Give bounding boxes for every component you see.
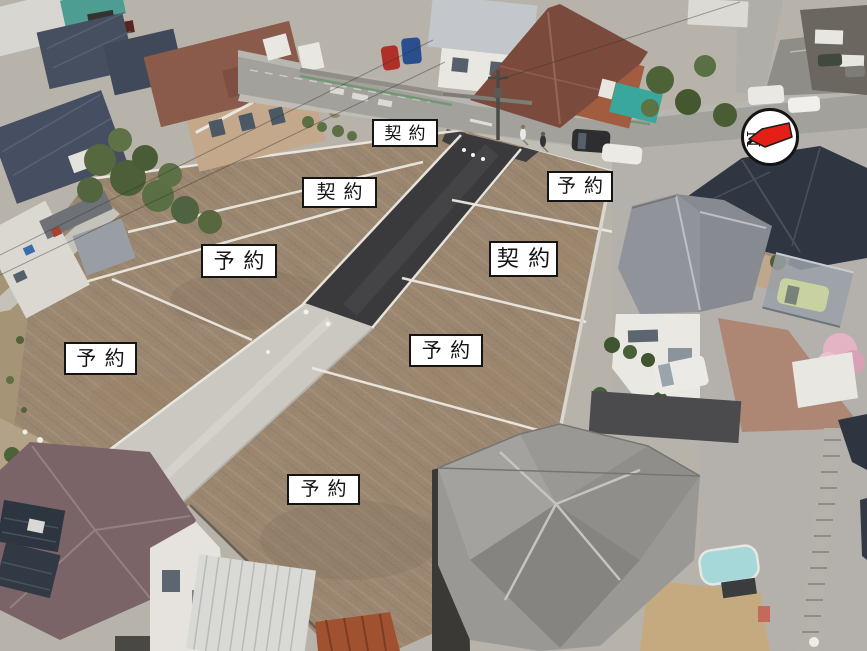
stepping-stone (809, 637, 819, 647)
red-bin (758, 606, 770, 622)
white-van (747, 85, 784, 105)
white-shed (186, 554, 316, 651)
aerial-photo-scene (0, 0, 867, 651)
gray-car (845, 65, 866, 77)
north-compass-icon: N (741, 108, 799, 166)
green-car (818, 53, 843, 66)
aerial-photo: 契約契約予約予約契約予約予約予約 N (0, 0, 867, 651)
white-building (687, 0, 748, 28)
white-wall (792, 352, 858, 408)
entrance (115, 636, 150, 651)
compass-arrow-graphic (744, 111, 796, 163)
compass-arrow (749, 123, 792, 147)
